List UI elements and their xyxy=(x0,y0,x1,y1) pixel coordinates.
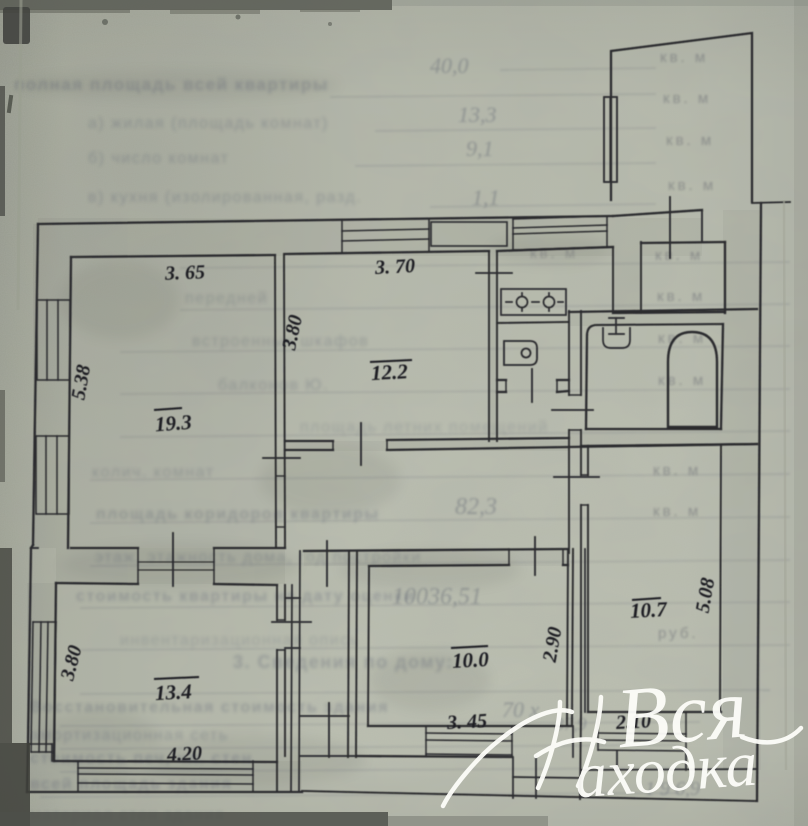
svg-text:13.4: 13.4 xyxy=(154,679,192,705)
svg-text:кв. м: кв. м xyxy=(655,247,703,264)
svg-text:площадь летних помещений: площадь летних помещений xyxy=(300,419,549,436)
svg-text:9,1: 9,1 xyxy=(466,136,494,161)
svg-text:инвентаризационная опись: инвентаризационная опись xyxy=(120,632,359,649)
svg-text:Восстановительная стоимость зд: Восстановительная стоимость здания xyxy=(30,699,389,716)
svg-text:10036,51: 10036,51 xyxy=(392,584,482,610)
svg-text:3. 70: 3. 70 xyxy=(374,255,416,279)
svg-text:10.7: 10.7 xyxy=(629,597,668,623)
svg-text:кв. м: кв. м xyxy=(666,132,714,149)
svg-text:кв. м: кв. м xyxy=(658,372,706,389)
svg-text:всей площадь здания: всей площадь здания xyxy=(30,776,232,793)
svg-text:кв. м: кв. м xyxy=(653,503,701,520)
svg-text:3. 45: 3. 45 xyxy=(446,710,488,734)
svg-text:б) число комнат: б) число комнат xyxy=(88,150,229,167)
svg-text:в) кухня (изолированная, разд.: в) кухня (изолированная, разд. xyxy=(88,189,362,206)
svg-text:4.20: 4.20 xyxy=(166,742,203,766)
svg-text:руб.: руб. xyxy=(658,625,699,642)
svg-text:1,1: 1,1 xyxy=(472,185,500,210)
svg-text:амортизационная сеть: амортизационная сеть xyxy=(30,727,229,744)
svg-text:стоимость квартиры на дату оце: стоимость квартиры на дату оценки xyxy=(76,588,415,605)
svg-text:кв. м: кв. м xyxy=(663,90,711,107)
svg-text:82,3: 82,3 xyxy=(455,494,497,520)
svg-text:10.0: 10.0 xyxy=(451,647,489,673)
svg-text:12.2: 12.2 xyxy=(370,359,408,385)
svg-text:полная площадь всей квартиры: полная площадь всей квартиры xyxy=(14,75,329,94)
svg-text:кв. м: кв. м xyxy=(668,177,716,194)
svg-text:аходка: аходка xyxy=(572,728,759,812)
svg-text:13,3: 13,3 xyxy=(458,102,497,127)
svg-text:стоимость печ, чл. стен: стоимость печ, чл. стен xyxy=(30,750,253,767)
svg-text:3. 65: 3. 65 xyxy=(164,261,206,284)
svg-text:40,0: 40,0 xyxy=(430,53,469,78)
svg-text:кв. м: кв. м xyxy=(657,288,705,305)
svg-text:кв. м: кв. м xyxy=(653,462,701,479)
svg-text:3. Сведения по дому:: 3. Сведения по дому: xyxy=(233,652,454,672)
svg-text:19.3: 19.3 xyxy=(154,410,192,437)
svg-text:кв. м: кв. м xyxy=(660,49,708,66)
svg-text:а) жилая (площадь комнат): а) жилая (площадь комнат) xyxy=(88,115,329,132)
